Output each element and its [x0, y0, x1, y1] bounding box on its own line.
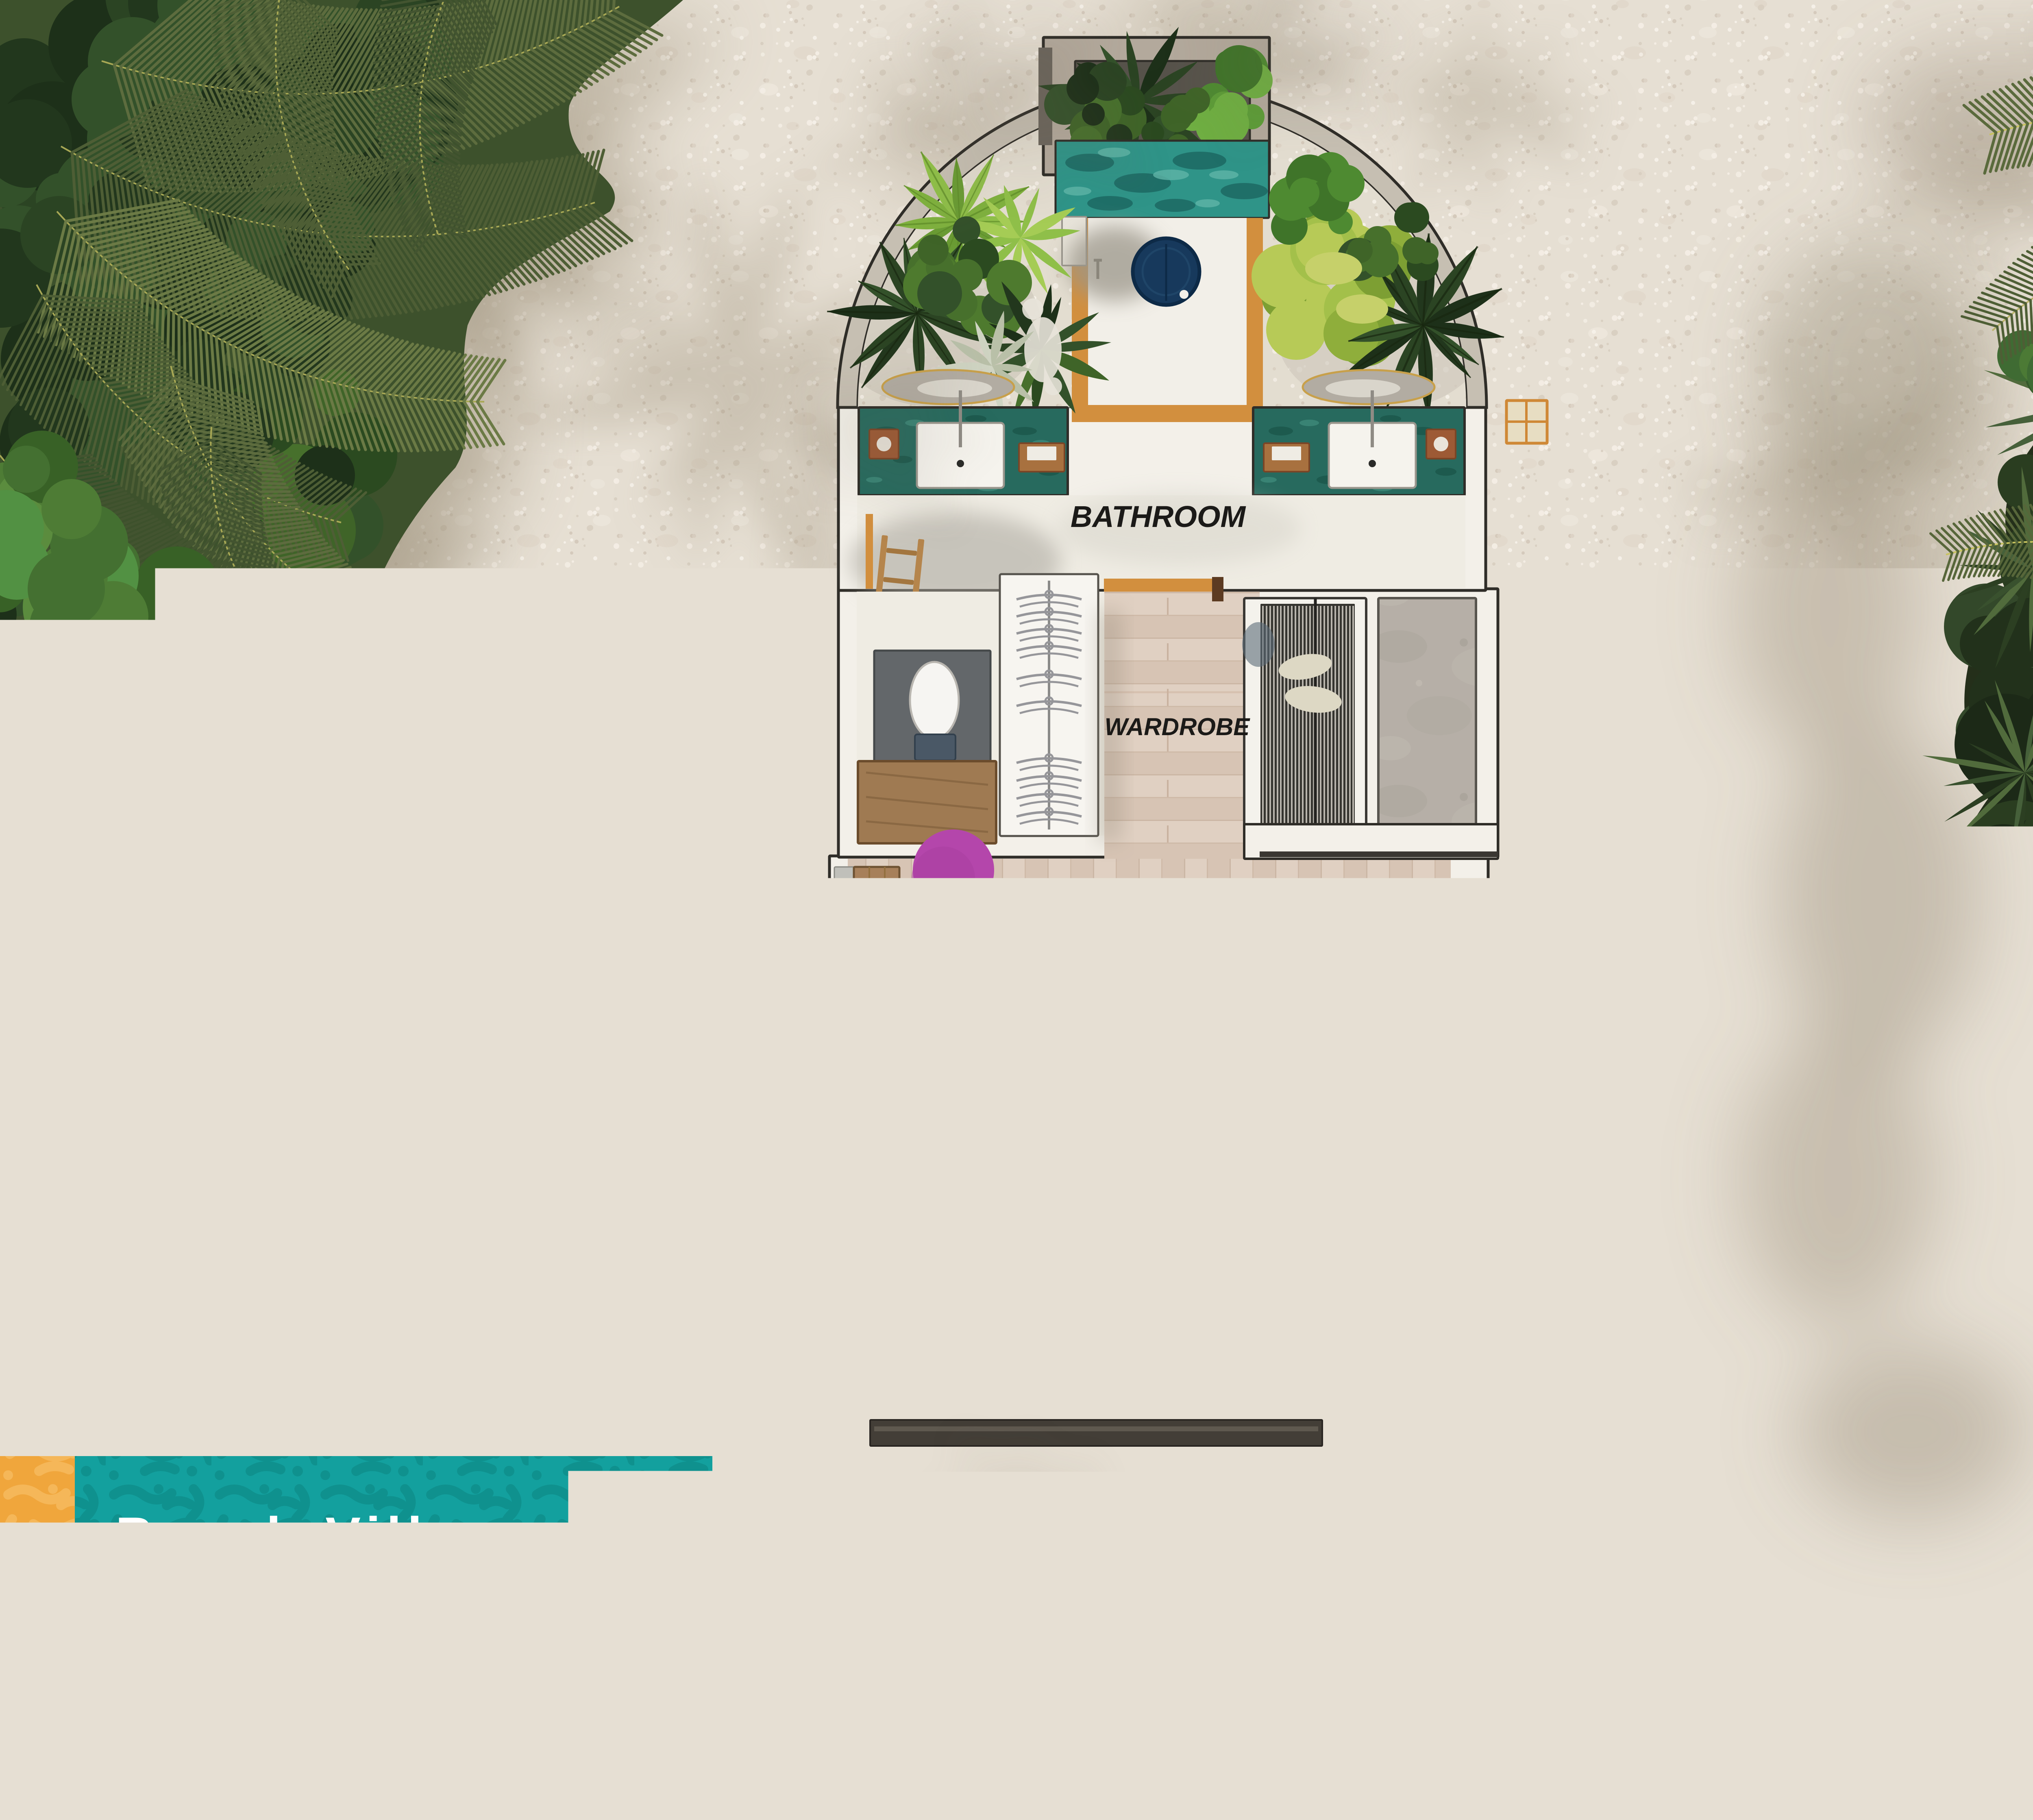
svg-text:VERANDAH: VERANDAH — [1246, 1555, 1408, 1587]
svg-text:BATHROOM: BATHROOM — [1071, 500, 1246, 533]
svg-text:WARDROBE: WARDROBE — [1105, 713, 1251, 740]
svg-text:BEDROOM: BEDROOM — [1255, 1339, 1413, 1373]
svg-text:Beach Villa: Beach Villa — [115, 1506, 464, 1565]
svg-text:Verandah - 12.5 M²: Verandah - 12.5 M² — [115, 1643, 374, 1675]
svg-text:Total Floor Area - 47.55 M²: Total Floor Area - 47.55 M² — [115, 1681, 475, 1713]
svg-text:Built Up Area - 35.05 M²: Built Up Area - 35.05 M² — [115, 1605, 439, 1637]
